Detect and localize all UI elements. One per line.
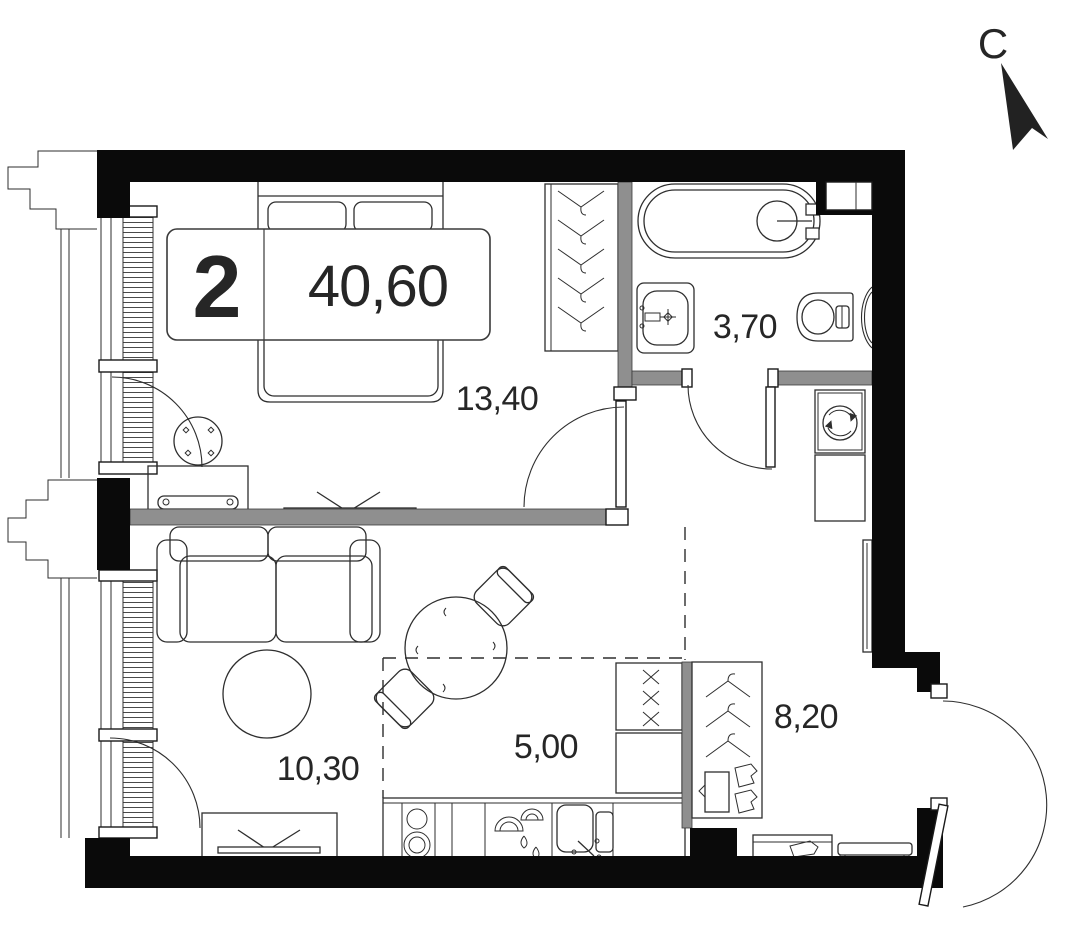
- under-sink-cabinet: [557, 805, 613, 859]
- door-leaf: [766, 387, 775, 467]
- dining-chair: [470, 564, 535, 629]
- living-room-area-label: 10,30: [277, 750, 360, 788]
- kitchen-tall-unit-top: [616, 663, 682, 730]
- hallway-area-label: 8,20: [774, 698, 838, 736]
- door-leaf: [616, 401, 626, 507]
- total-area-label: 40,60: [308, 254, 448, 319]
- hall-cabinet: [815, 455, 865, 521]
- bedroom-area-label: 13,40: [456, 380, 539, 418]
- shoe-icon: [735, 790, 757, 813]
- tv-dresser: [148, 466, 248, 510]
- hob-burners-icon: [404, 809, 430, 858]
- faucet-icon: [660, 309, 676, 325]
- partition-bathroom-left: [632, 371, 682, 385]
- mirror: [863, 540, 872, 652]
- kitchen-area-label: 5,00: [514, 728, 578, 766]
- sofa: [157, 527, 380, 642]
- floor-plan-drawing: 2 40,60 13,40 3,70 10,30 5,00 8,20 С: [0, 0, 1077, 934]
- pillow: [268, 202, 346, 232]
- bathroom-area-label: 3,70: [713, 308, 777, 346]
- partition-wardrobe-bathroom: [618, 182, 632, 395]
- bathtub: [638, 184, 820, 258]
- facade-decor: [8, 151, 97, 838]
- room-area-labels: 13,40 3,70 10,30 5,00 8,20: [277, 308, 838, 788]
- wardrobe: [545, 184, 618, 351]
- bathroom-door: [688, 385, 775, 469]
- kitchen-sink-icon: [495, 809, 543, 859]
- bath-sink: [637, 283, 694, 353]
- window-left-lower: [99, 570, 157, 838]
- kitchen-shaft: [690, 828, 737, 858]
- north-arrow-icon: [1001, 63, 1048, 150]
- door-swing-arc: [688, 385, 772, 469]
- shoe-bench: [753, 835, 832, 858]
- shoe-icon: [735, 764, 757, 787]
- coffee-table: [223, 650, 311, 738]
- tv-stand: [202, 813, 337, 857]
- dining-table: [405, 597, 507, 699]
- dining-chair: [372, 665, 437, 730]
- stove-marks-icon: [643, 670, 659, 726]
- north-letter: С: [978, 20, 1008, 67]
- toilet: [797, 293, 853, 341]
- hallway-closet: [682, 662, 762, 828]
- door-swing-arc: [943, 701, 1047, 907]
- washing-machine-icon: [815, 390, 865, 453]
- bedroom-door: [524, 401, 626, 507]
- window-left-upper: [99, 206, 157, 474]
- partition-bathroom-right: [778, 371, 872, 385]
- kitchen-tall-unit-bottom: [616, 733, 682, 793]
- coat-hangers-icon: [558, 191, 604, 331]
- shoe-icon: [790, 841, 818, 857]
- room-count-label: 2: [193, 237, 240, 336]
- partition-bedroom-living: [130, 509, 618, 525]
- vent-niche: [826, 182, 872, 210]
- north-indicator: С: [978, 20, 1048, 150]
- pillow: [354, 202, 432, 232]
- door-swing-arc: [524, 407, 624, 507]
- coat-hangers-icon: [706, 674, 750, 757]
- kitchen-counter: [383, 798, 685, 859]
- unit-info-badge: 2 40,60: [167, 229, 490, 340]
- floor-plan: 2 40,60 13,40 3,70 10,30 5,00 8,20 С: [0, 0, 1077, 934]
- shoe-box: [705, 772, 729, 812]
- tap-icon: [806, 228, 819, 239]
- towel-rail-icon: [862, 287, 873, 348]
